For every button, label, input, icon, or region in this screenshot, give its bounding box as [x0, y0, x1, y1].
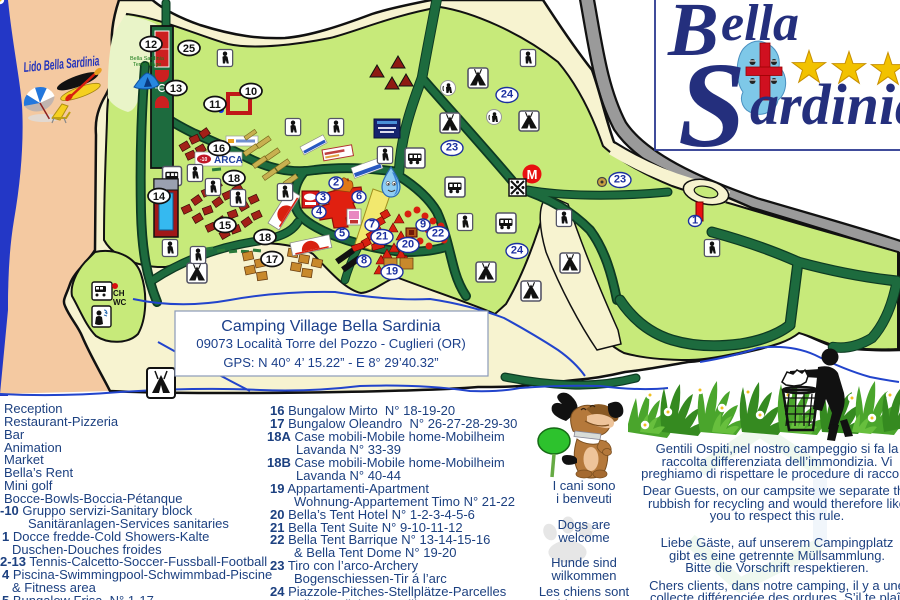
svg-text:22: 22: [432, 228, 444, 240]
svg-text:17: 17: [266, 254, 278, 266]
svg-text:3: 3: [320, 192, 326, 204]
svg-text:ardinia: ardinia: [750, 72, 900, 137]
svg-text:4: 4: [316, 206, 323, 218]
svg-text:1: 1: [692, 215, 698, 227]
svg-text:CH: CH: [113, 289, 125, 298]
svg-text:ARCA: ARCA: [214, 155, 243, 166]
svg-text:16: 16: [213, 143, 225, 155]
svg-text:2: 2: [333, 177, 339, 189]
svg-text:10: 10: [245, 86, 257, 98]
svg-text:Tent Village: Tent Village: [133, 62, 161, 68]
svg-text:5: 5: [339, 228, 345, 240]
svg-text:23: 23: [614, 174, 626, 186]
svg-text:23: 23: [446, 142, 458, 154]
svg-text:21: 21: [376, 231, 388, 243]
svg-text:24: 24: [501, 89, 514, 101]
svg-text:8: 8: [361, 255, 367, 267]
svg-text:Camping Village Bella Sardinia: Camping Village Bella Sardinia: [221, 318, 440, 335]
svg-text:15: 15: [219, 220, 231, 232]
svg-text:13: 13: [170, 83, 182, 95]
svg-text:9: 9: [420, 219, 426, 231]
svg-text:18: 18: [228, 173, 240, 185]
svg-text:6: 6: [356, 191, 362, 203]
svg-text:14: 14: [153, 191, 166, 203]
svg-text:WC: WC: [113, 298, 127, 307]
svg-text:18: 18: [259, 232, 271, 244]
svg-text:-10: -10: [200, 157, 207, 163]
svg-text:12: 12: [145, 39, 157, 51]
svg-text:S: S: [678, 38, 746, 173]
svg-text:20: 20: [402, 239, 414, 251]
svg-text:7: 7: [369, 219, 375, 231]
svg-text:09073 Località Torre del Pozzo: 09073 Località Torre del Pozzo - Cuglier…: [196, 336, 466, 351]
svg-text:M: M: [527, 167, 538, 182]
svg-text:11: 11: [209, 99, 221, 111]
svg-text:24: 24: [511, 245, 524, 257]
svg-text:GPS: N 40° 4’ 15.22” - E 8° 29: GPS: N 40° 4’ 15.22” - E 8° 29’40.32”: [223, 355, 438, 370]
svg-text:19: 19: [386, 266, 398, 278]
svg-text:25: 25: [183, 43, 195, 55]
